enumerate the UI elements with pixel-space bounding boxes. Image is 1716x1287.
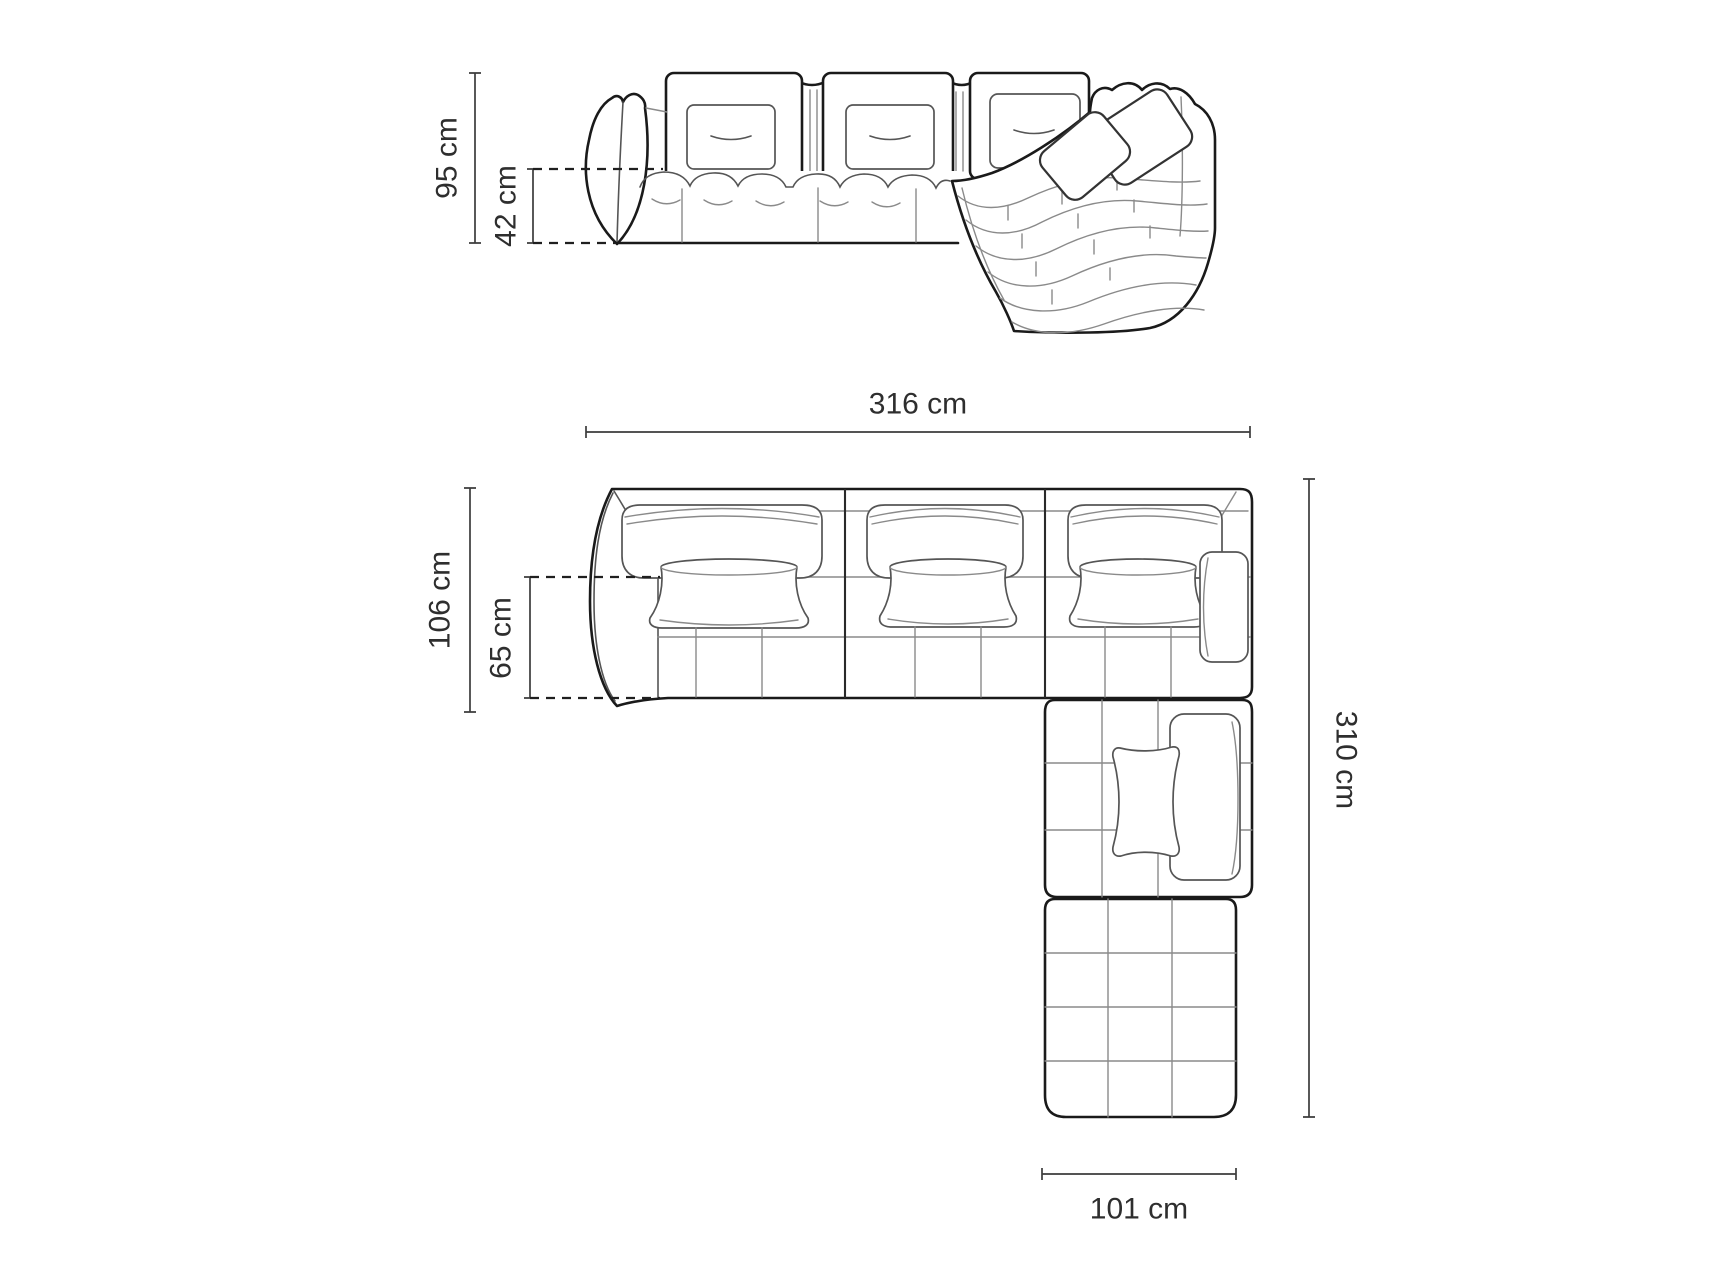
sofa-dimension-diagram: 95 cm 42 cm 316 cm 106 cm 65 cm 310 cm [0, 0, 1716, 1287]
dim-total-length: 310 cm [1303, 479, 1363, 1117]
back-pillow-2 [846, 105, 934, 169]
plan-corner-lumbar-pillow [1113, 747, 1179, 856]
plan-side-back-cushion [1200, 552, 1248, 662]
front-elevation-view [586, 73, 1215, 333]
armrest-back-seam [646, 108, 667, 112]
dim-total-depth-label: 106 cm [424, 551, 457, 649]
plan-seat-pillow-3 [1070, 559, 1207, 627]
technical-drawing-svg: 95 cm 42 cm 316 cm 106 cm 65 cm 310 cm [0, 0, 1716, 1287]
dim-chaise-width: 101 cm [1042, 1168, 1236, 1226]
dim-total-width: 316 cm [586, 388, 1250, 439]
dim-seat-depth-label: 65 cm [485, 597, 518, 679]
plan-seat-pillow-2 [880, 559, 1017, 627]
dim-seat-height-label: 42 cm [490, 165, 523, 247]
plan-ottoman-module [1045, 899, 1236, 1117]
plan-seat-pillow-1 [650, 559, 809, 628]
top-plan-view [590, 489, 1252, 1117]
dim-total-length-label: 310 cm [1330, 711, 1363, 809]
plan-corner-back-cushion [1170, 714, 1240, 880]
module-gap-seam [956, 92, 963, 171]
dim-chaise-width-label: 101 cm [1090, 1193, 1188, 1226]
back-pillow-1 [687, 105, 775, 169]
seat-base [648, 171, 958, 243]
module-gap-seam [810, 90, 817, 171]
dim-total-height-label: 95 cm [431, 117, 464, 199]
dim-total-height: 95 cm [431, 73, 482, 243]
dim-total-width-label: 316 cm [869, 388, 967, 421]
dim-total-depth: 106 cm [424, 488, 477, 712]
